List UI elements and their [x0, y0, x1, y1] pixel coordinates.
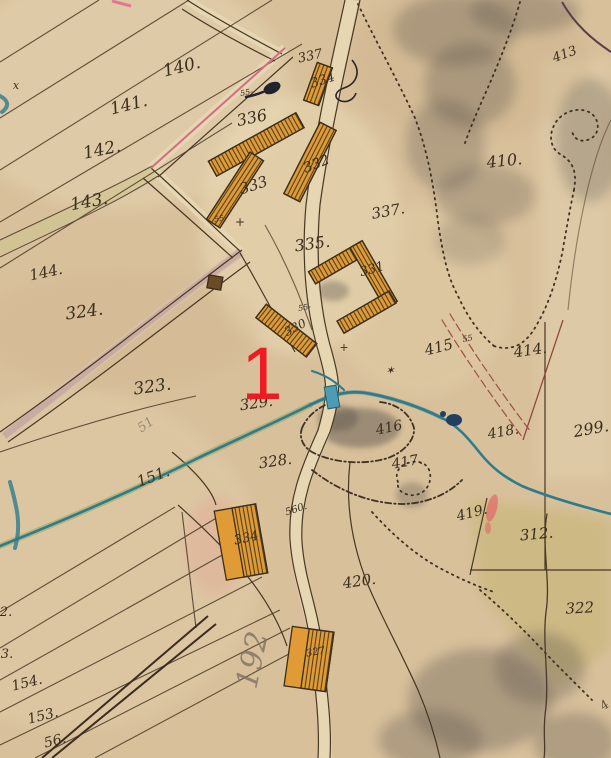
- label-410: 410.: [485, 149, 523, 172]
- cross-mark-a: +: [235, 215, 245, 229]
- label-edge-3: 3.: [1, 647, 13, 662]
- label-312: 312.: [519, 524, 554, 545]
- building-small-shed: [207, 275, 223, 290]
- survey-mark-55-d: 55: [462, 333, 474, 344]
- pond: [446, 414, 462, 426]
- historical-map: 140. 141. 142. 143. 144. 324. 323. 329. …: [0, 0, 611, 758]
- label-322: 322: [565, 598, 595, 617]
- map-canvas: 140. 141. 142. 143. 144. 324. 323. 329. …: [0, 0, 611, 758]
- cross-mark-b: +: [339, 341, 348, 354]
- x-mark: x: [13, 79, 20, 92]
- annotation-marker-1[interactable]: 1: [241, 332, 282, 415]
- star-mark: ✶: [385, 364, 395, 377]
- label-edge-2: 2.: [0, 605, 12, 620]
- ink-smudge: [317, 281, 349, 301]
